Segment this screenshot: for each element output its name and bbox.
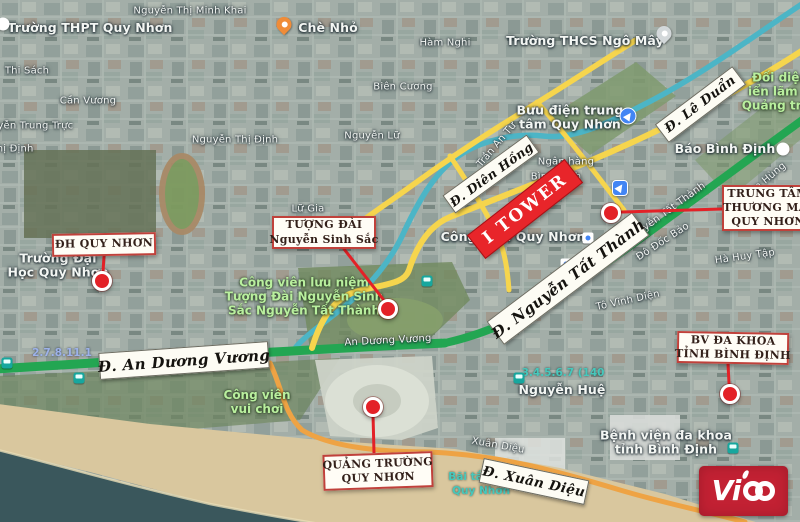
marker-dh-quy-nhon — [92, 271, 112, 291]
label-line: Trường THPT Quy Nhơn — [8, 21, 173, 35]
park-label: Đối diệniển lãm QQuảng trườ — [742, 71, 800, 112]
vico-logo-text: Vi — [712, 477, 741, 505]
label-line: Đối diện — [742, 71, 800, 85]
street-label: Thị Định — [0, 143, 34, 155]
street-label: Nguyễn Thị Định — [192, 134, 278, 146]
callout-trung-tam-thuong-mai-quy-nhon: TRUNG TÂMTHƯƠNG MẠIQUY NHƠN — [722, 185, 800, 231]
label-line: QUY NHƠN — [341, 470, 415, 487]
label-line: tâm Quy Nhơn — [517, 118, 624, 132]
bus-stop-icon-detail — [424, 278, 431, 282]
label-line: Tượng Đài Nguyễn Sinh — [225, 290, 383, 304]
street-label: Nguyễn Lữ — [344, 130, 399, 142]
street-label: Biên Cương — [373, 81, 432, 93]
bus-stop-icon-detail — [4, 360, 11, 364]
place-label: Chè Nhỏ — [298, 21, 358, 35]
label-line: TỈNH BÌNH ĐỊNH — [675, 347, 791, 363]
bus-stop-icon — [2, 358, 13, 369]
navigation-icon-detail — [614, 182, 625, 193]
callout-dh-quy-nhon: ĐH QUY NHƠN — [52, 232, 156, 257]
bus-stop-icon-detail — [730, 445, 737, 449]
callout-quang-truong-quy-nhon: QUẢNG TRƯỜNGQUY NHƠN — [322, 451, 433, 491]
callout-tuong-dai-nguyen-sinh-sac: TƯỢNG ĐÀINguyễn Sinh Sắc — [272, 216, 376, 249]
marker-quang-truong-quy-nhon — [363, 397, 383, 417]
street-label: Cần Vương — [60, 95, 116, 107]
poi-pin-icon-detail — [660, 29, 668, 37]
place-label: Nguyễn Huệ — [518, 383, 605, 397]
label-line: QUY NHƠN — [731, 215, 800, 229]
stadium-oval — [162, 156, 202, 232]
label-line: THƯƠNG MẠI — [723, 201, 800, 215]
transit-label: 3.4.5.6.7 (140 — [522, 367, 605, 379]
label-line: vui chơi — [224, 403, 291, 417]
bus-stop-icon — [422, 276, 433, 287]
place-label: Trường THCS Ngô Mây — [506, 34, 664, 48]
poi-dot-icon — [777, 143, 790, 156]
label-line: Nguyễn Sinh Sắc — [269, 233, 378, 247]
park-label: Công viên lưu niệmTượng Đài Nguyễn SinhS… — [225, 276, 383, 317]
station-icon-detail — [586, 236, 591, 241]
place-label: Bưu điện trungtâm Quy Nhơn — [517, 104, 624, 133]
place-label: Bệnh viện đa khoatỉnh Bình Định — [600, 429, 732, 458]
street-label: Thi Sách — [5, 65, 49, 77]
navigation-icon — [612, 180, 628, 196]
label-line: TƯỢNG ĐÀI — [286, 218, 363, 232]
park-label: Công viênvui chơi — [224, 389, 291, 417]
annotated-satellite-map: Vi Nguyễn Thị Minh KhaiThi SáchCần Vương… — [0, 0, 800, 522]
label-line: Chè Nhỏ — [298, 21, 358, 35]
bus-stop-icon — [514, 373, 525, 384]
bus-stop-icon — [74, 373, 85, 384]
label-line: Nguyễn Huệ — [518, 383, 605, 397]
bus-stop-icon-detail — [76, 375, 83, 379]
label-line: Trường THCS Ngô Mây — [506, 34, 664, 48]
label-line: BV ĐA KHOA — [691, 333, 776, 349]
street-label: Nguyễn Thị Minh Khai — [133, 5, 246, 17]
label-line: tỉnh Bình Định — [600, 443, 732, 457]
label-line: Công viên lưu niệm — [225, 276, 383, 290]
transit-label: 2.7.8.11.1 — [32, 347, 92, 359]
label-line: Quảng trườ — [742, 99, 800, 113]
marker-bv-da-khoa-tinh-binh-dinh — [720, 384, 740, 404]
flame-accent-icon — [742, 469, 750, 479]
label-line: ĐH QUY NHƠN — [55, 236, 153, 252]
callout-bv-da-khoa-tinh-binh-dinh: BV ĐA KHOATỈNH BÌNH ĐỊNH — [677, 331, 790, 365]
marker-trung-tam-thuong-mai-quy-nhon — [601, 203, 621, 223]
label-line: iển lãm Q — [742, 85, 800, 99]
label-line: TRUNG TÂM — [727, 187, 800, 201]
university-campus — [24, 150, 156, 238]
bus-stop-icon-detail — [516, 375, 523, 379]
place-label: Báo Bình Định — [675, 142, 776, 156]
street-label: Lữ Gia — [292, 203, 325, 215]
vico-logo: Vi — [699, 466, 788, 516]
label-line: Sắc Nguyễn Tất Thành — [225, 304, 383, 318]
street-label: Nguyễn Trung Trực — [0, 120, 73, 132]
label-line: Công viên — [224, 389, 291, 403]
place-label: Trường THPT Quy Nhơn — [8, 21, 173, 35]
direction-icon-detail — [622, 110, 633, 121]
marker-tuong-dai-nguyen-sinh-sac — [378, 299, 398, 319]
street-label: Hàm Nghi — [419, 37, 470, 49]
vico-ring-icon — [755, 481, 775, 501]
direction-icon — [620, 108, 637, 125]
food-pin-icon-detail — [280, 20, 288, 28]
bus-stop-icon — [728, 443, 739, 454]
label-line: Báo Bình Định — [675, 142, 776, 156]
